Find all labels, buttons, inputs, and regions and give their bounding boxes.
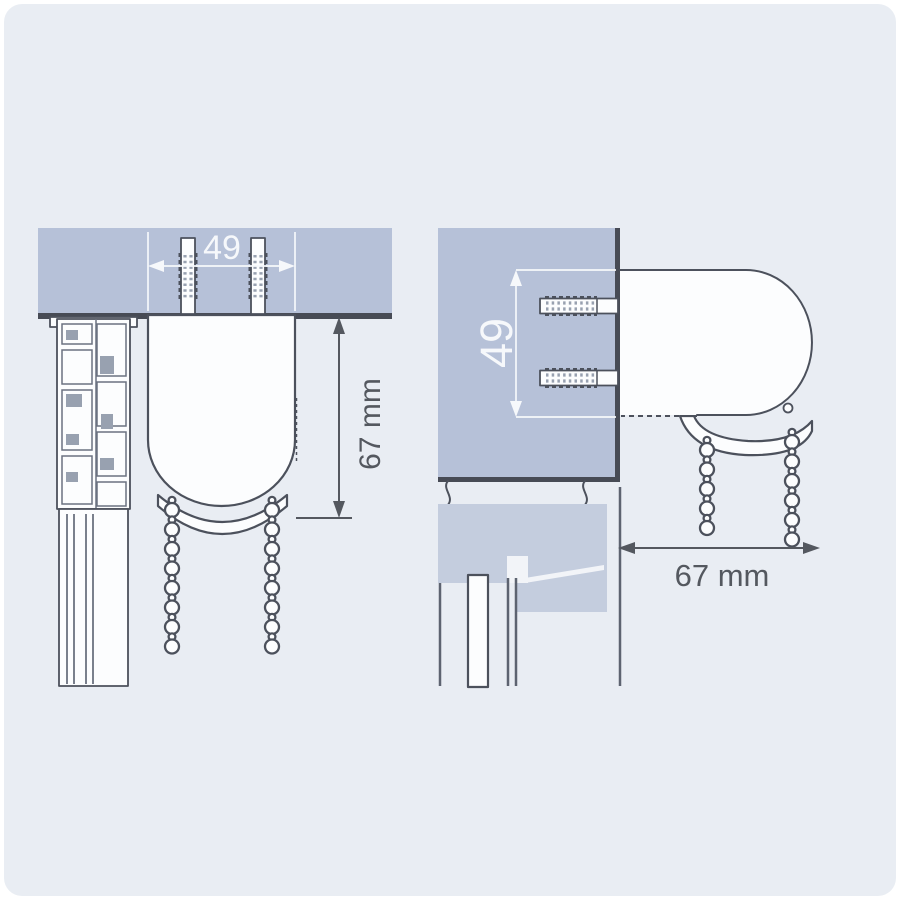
bead-chain-front xyxy=(700,437,714,535)
wall-plug-right xyxy=(250,238,266,314)
wall-mount-view: 49 67 mm xyxy=(438,228,820,687)
wall-plug-left xyxy=(180,238,196,314)
dim-label-67mm: 67 mm xyxy=(354,378,387,470)
arrow-down-icon xyxy=(333,501,345,518)
chain-wheel-hub xyxy=(784,404,793,413)
wall-plug-lower xyxy=(540,370,618,387)
arrow-right-icon xyxy=(803,542,820,554)
frame-notch xyxy=(507,556,528,583)
arrow-up-icon xyxy=(333,317,345,334)
glass-unit xyxy=(468,575,488,687)
wall-bottom-edge xyxy=(438,477,620,482)
dim-label-49: 49 xyxy=(203,229,241,267)
bracket-side-body xyxy=(620,270,812,415)
roller-cassette xyxy=(148,315,295,506)
roller-blind-mounting-diagram: 49 67 mm xyxy=(0,0,900,900)
height-dimension-67: 67 mm xyxy=(296,317,387,518)
break-marks xyxy=(446,481,587,506)
wall-front-edge xyxy=(615,228,620,482)
window-profile-section xyxy=(50,317,137,686)
window-frame-side xyxy=(438,487,620,687)
dim-label-49: 49 xyxy=(471,318,522,368)
wall-plug-upper xyxy=(540,298,618,315)
dim-label-67mm: 67 mm xyxy=(675,558,770,593)
frame-lower-block xyxy=(515,583,607,612)
ceiling-mount-view: 49 67 mm xyxy=(38,228,392,686)
depth-dimension-67: 67 mm xyxy=(618,542,820,593)
bead-chain-back xyxy=(785,429,799,547)
wall-block xyxy=(438,228,616,482)
product-dimension-page: { "colors": { "page_margin": "#ffffff", … xyxy=(0,0,900,900)
